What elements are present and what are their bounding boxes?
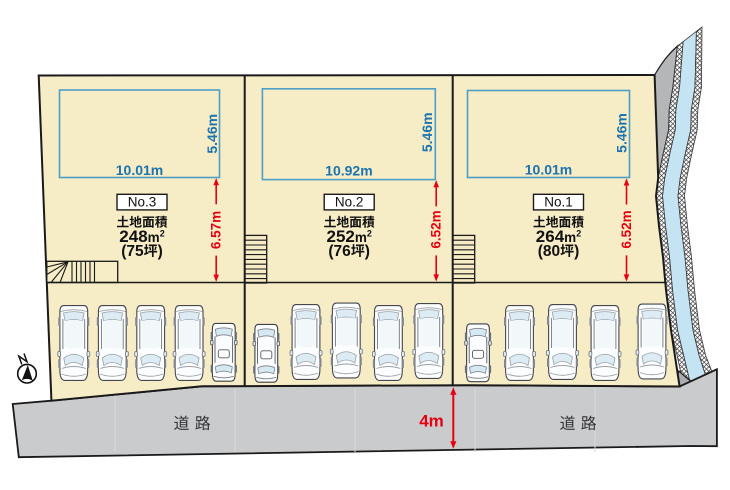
svg-text:No.2: No.2 bbox=[335, 195, 364, 210]
svg-text:10.01m: 10.01m bbox=[525, 162, 572, 178]
svg-text:): ) bbox=[574, 243, 579, 260]
svg-text:4m: 4m bbox=[419, 411, 444, 430]
svg-text:No.3: No.3 bbox=[128, 195, 157, 210]
svg-text:10.92m: 10.92m bbox=[325, 163, 372, 179]
svg-text:(75: (75 bbox=[121, 243, 144, 260]
svg-text:(76: (76 bbox=[328, 243, 351, 260]
svg-text:): ) bbox=[365, 243, 370, 260]
svg-text:5.46m: 5.46m bbox=[204, 114, 220, 154]
svg-text:6.57m: 6.57m bbox=[209, 211, 224, 249]
svg-text:6.52m: 6.52m bbox=[429, 210, 444, 248]
svg-text:No.1: No.1 bbox=[544, 195, 573, 210]
svg-text:): ) bbox=[158, 243, 163, 260]
svg-text:6.52m: 6.52m bbox=[619, 210, 634, 248]
svg-text:5.46m: 5.46m bbox=[419, 112, 435, 152]
svg-text:10.01m: 10.01m bbox=[116, 162, 163, 178]
svg-text:5.46m: 5.46m bbox=[614, 113, 630, 153]
svg-text:(80: (80 bbox=[538, 243, 560, 260]
